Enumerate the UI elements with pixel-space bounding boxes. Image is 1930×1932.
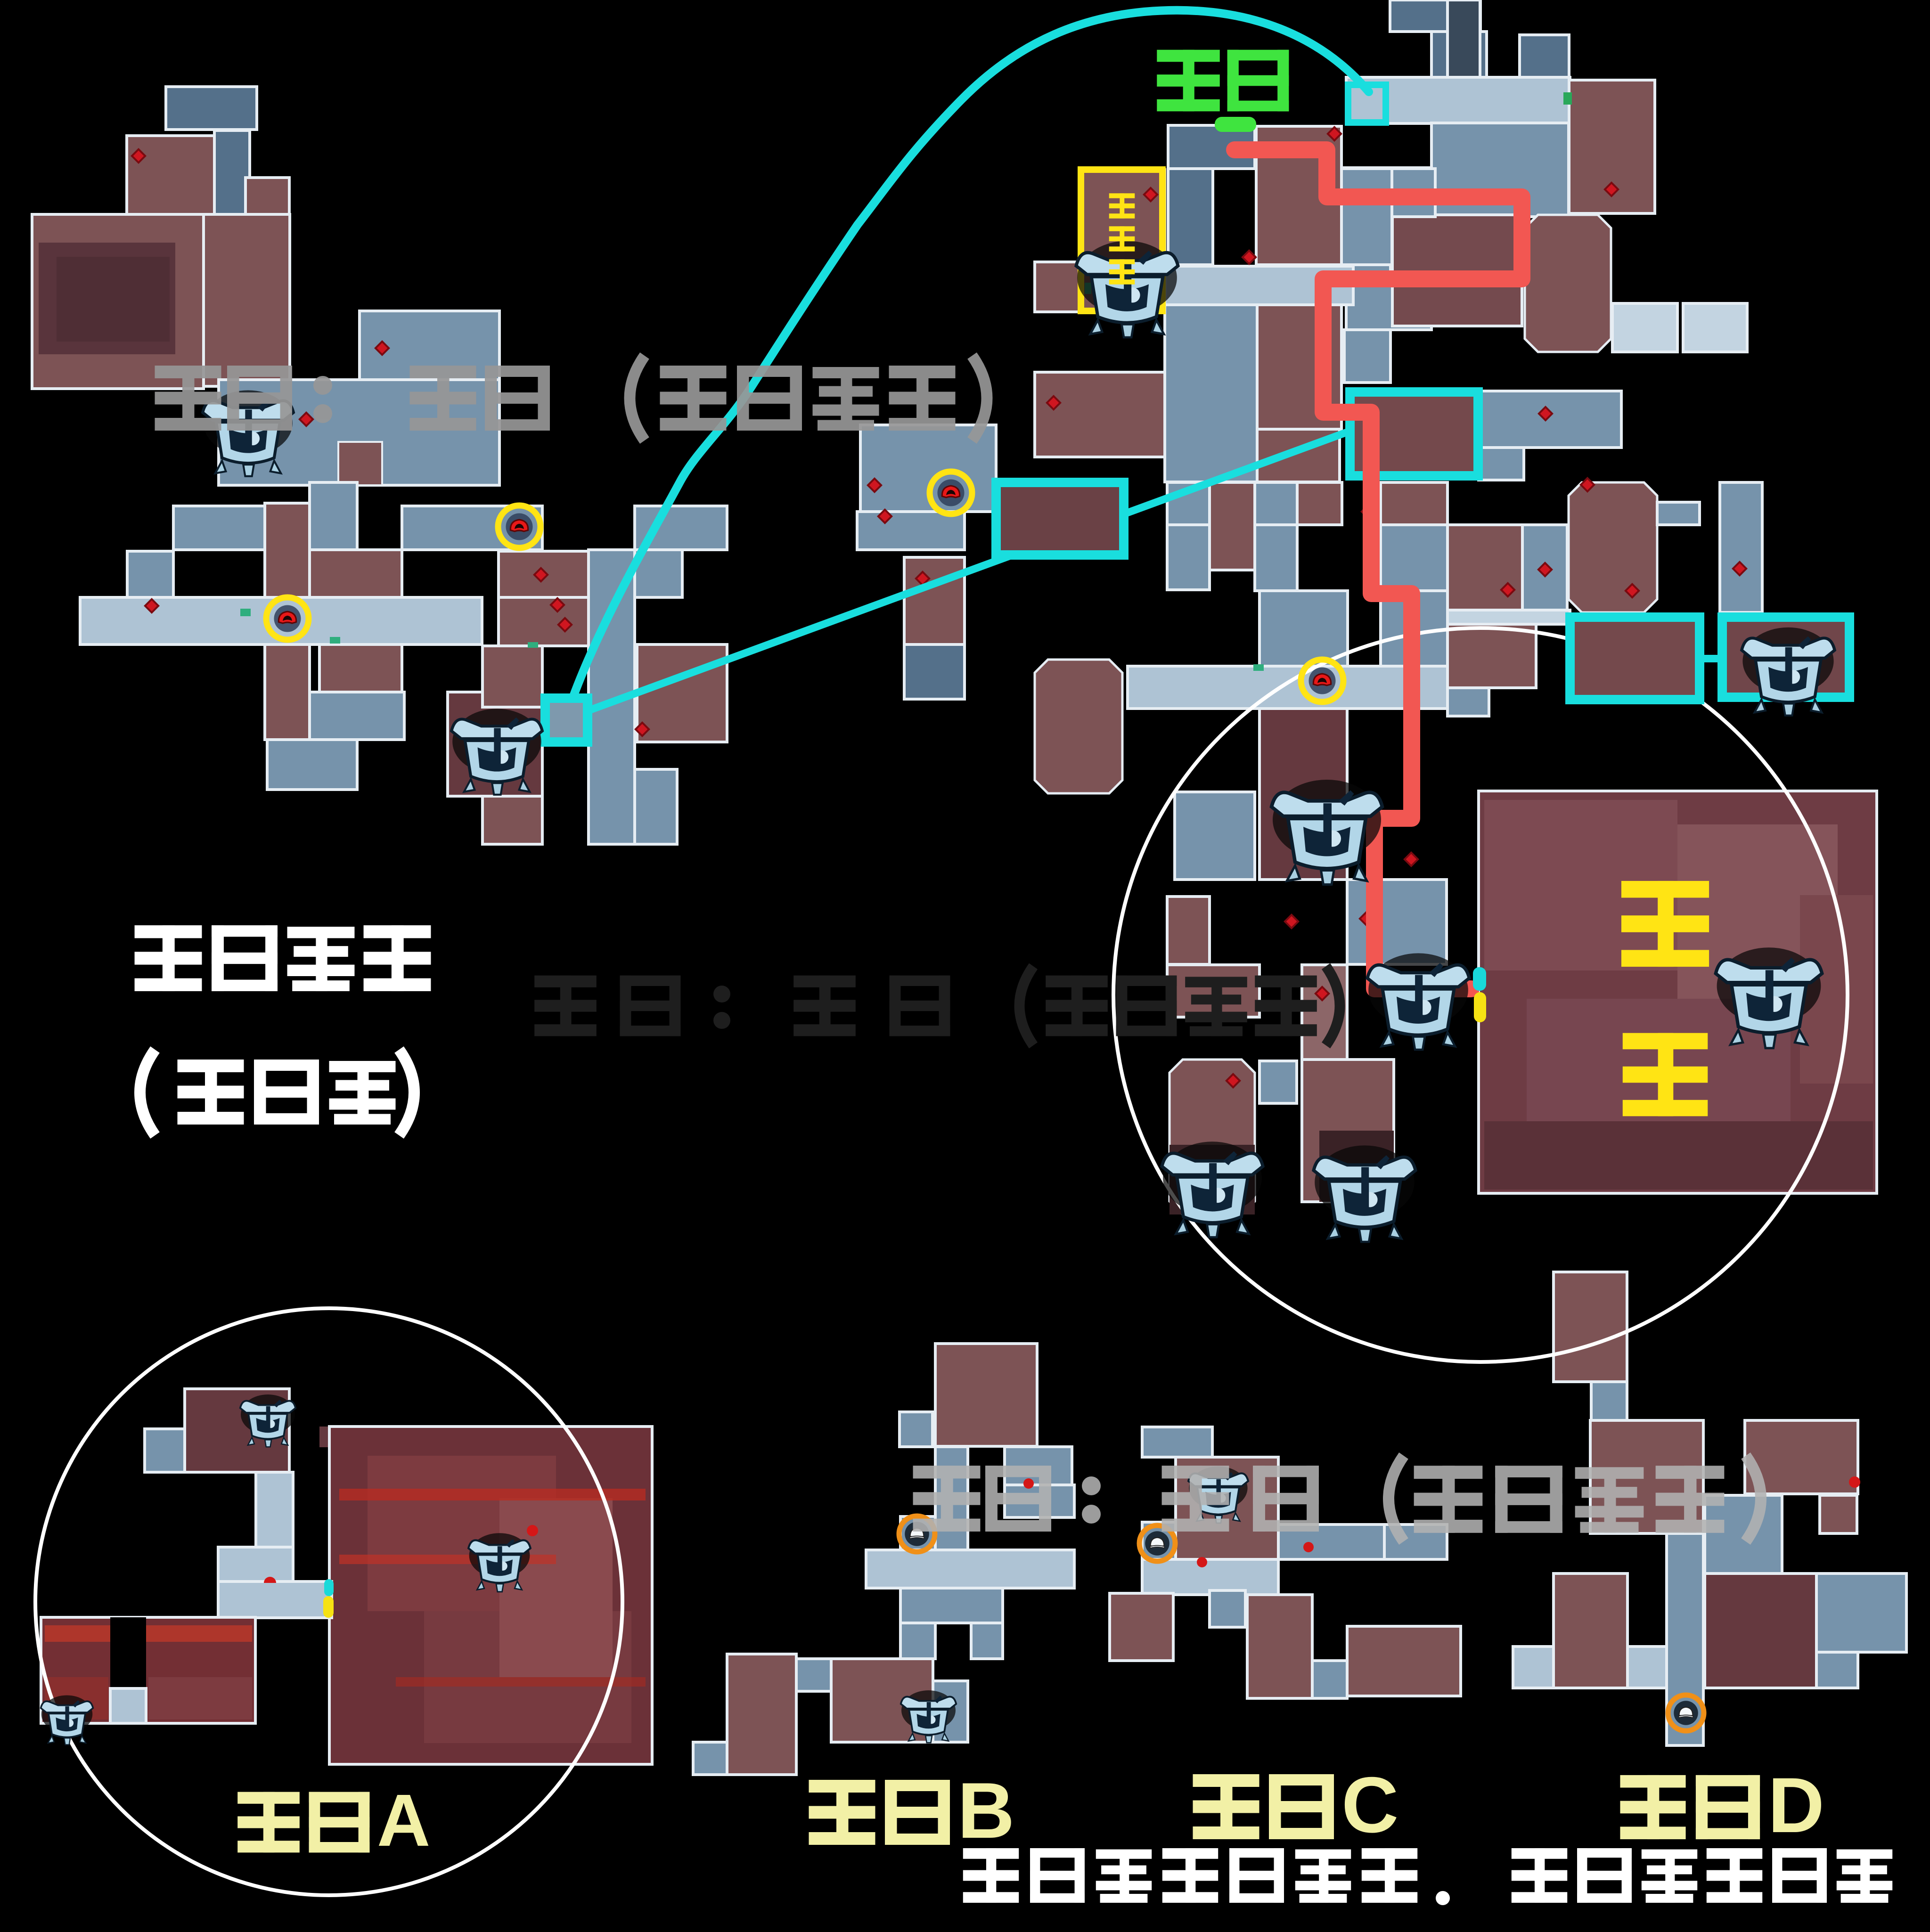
svg-text:C: C (1341, 1761, 1398, 1849)
svg-text:A: A (377, 1779, 430, 1862)
svg-text:B: B (957, 1766, 1014, 1855)
svg-text:D: D (1768, 1762, 1824, 1849)
